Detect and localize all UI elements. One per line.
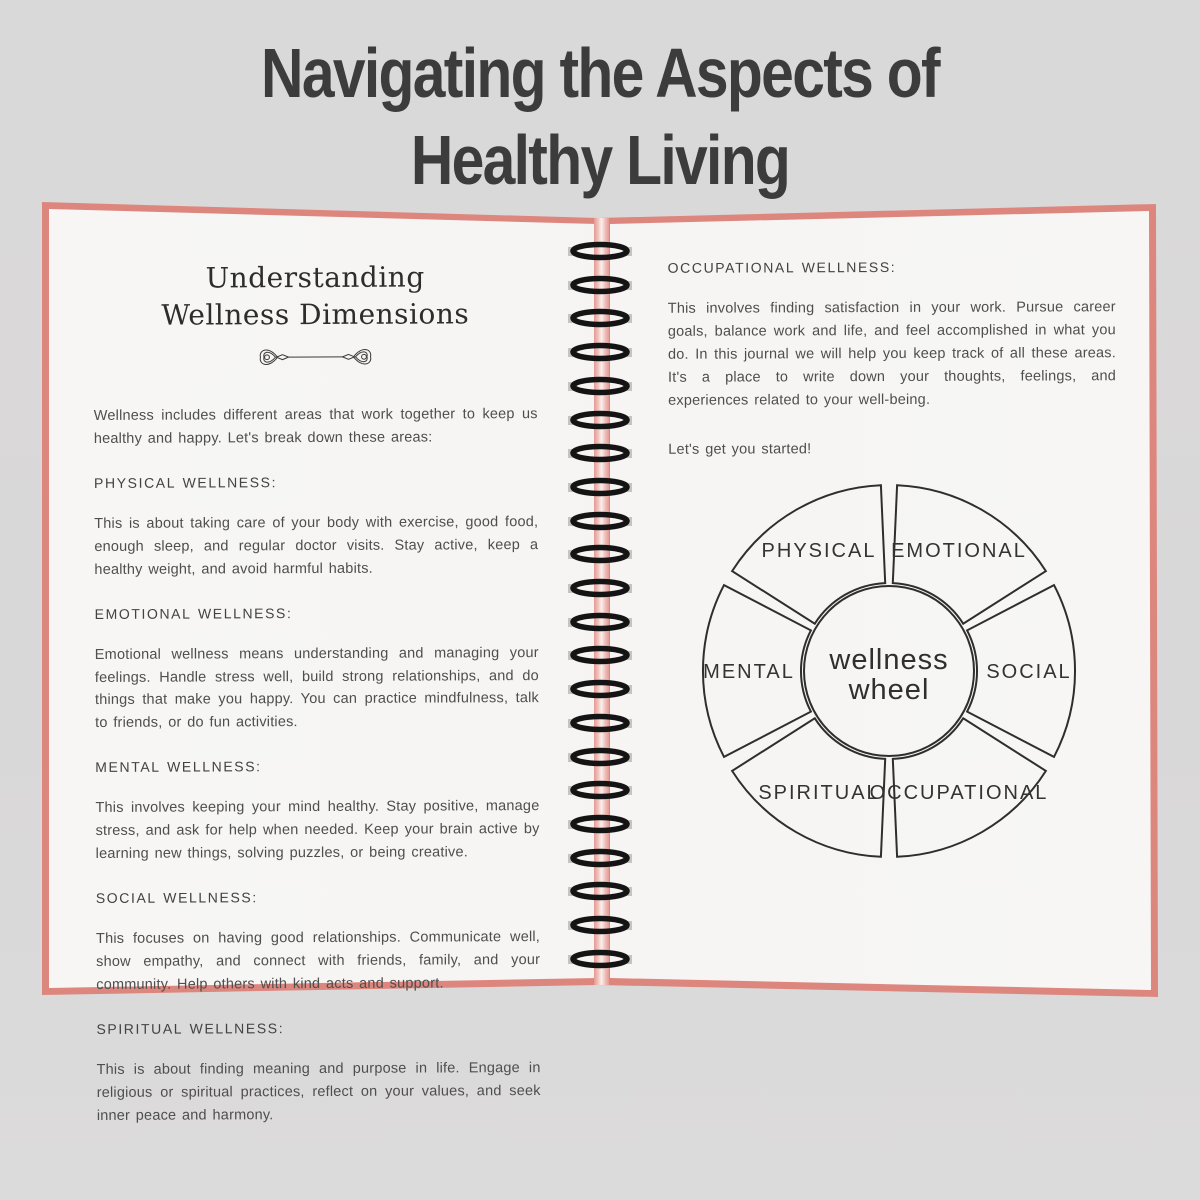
spiral-coil-icon [568, 307, 632, 329]
section-body-spiritual: This is about finding meaning and purpos… [97, 1057, 541, 1128]
spiral-coil-icon [568, 341, 632, 363]
wheel-segment-label-spiritual: SPIRITUAL [758, 782, 879, 804]
wheel-segment-label-occupational: OCCUPATIONAL [870, 782, 1049, 804]
heart-flourish-icon [256, 342, 374, 373]
left-page-heading: UnderstandingWellness Dimensions [93, 259, 537, 335]
spiral-coil-icon [568, 644, 632, 666]
spiral-coil-icon [568, 678, 632, 700]
section-body-physical: This is about taking care of your body w… [94, 511, 538, 582]
section-heading-mental: MENTAL WELLNESS: [95, 754, 539, 778]
page-title-line2: Healthy Living [411, 121, 789, 199]
spiral-coil-icon [568, 611, 632, 633]
section-body-social: This focuses on having good relationship… [96, 926, 540, 997]
spiral-coil-icon [568, 847, 632, 869]
journal-spread: UnderstandingWellness Dimensions Wellnes… [40, 196, 1160, 1002]
spiral-coil-icon [568, 240, 632, 262]
spiral-coil-icon [568, 577, 632, 599]
spiral-coil-icon [568, 779, 632, 801]
page-title: Navigating the Aspects ofHealthy Living [96, 30, 1104, 204]
right-page-content: OCCUPATIONAL WELLNESS: This involves fin… [668, 255, 1117, 482]
spiral-coil-icon [568, 914, 632, 936]
section-body-emotional: Emotional wellness means understanding a… [95, 642, 539, 736]
left-page-content: UnderstandingWellness Dimensions Wellnes… [93, 259, 541, 1149]
section-heading-emotional: EMOTIONAL WELLNESS: [95, 601, 539, 625]
spiral-coil-icon [568, 510, 632, 532]
wheel-segment-label-emotional: EMOTIONAL [891, 540, 1027, 562]
section-body-mental: This involves keeping your mind healthy.… [95, 795, 539, 866]
spiral-coil-icon [568, 274, 632, 296]
get-started-text: Let's get you started! [668, 437, 1116, 461]
wellness-wheel-diagram: PHYSICALEMOTIONALMENTALSOCIALSPIRITUALOC… [696, 478, 1082, 864]
spiral-coil-icon [568, 442, 632, 464]
left-heading-line2: Wellness Dimensions [161, 297, 469, 331]
spiral-coil-icon [568, 409, 632, 431]
wheel-segment-label-mental: MENTAL [703, 661, 795, 683]
spiral-coil-icon [568, 746, 632, 768]
left-heading-line1: Understanding [205, 261, 424, 295]
page-title-line1: Navigating the Aspects of [261, 34, 939, 112]
section-heading-occupational: OCCUPATIONAL WELLNESS: [668, 255, 1116, 279]
section-heading-spiritual: SPIRITUAL WELLNESS: [96, 1016, 540, 1040]
spiral-coil-icon [568, 880, 632, 902]
spiral-coil-icon [568, 813, 632, 835]
wheel-segment-label-physical: PHYSICAL [762, 540, 877, 562]
spiral-coil-icon [568, 476, 632, 498]
section-heading-physical: PHYSICAL WELLNESS: [94, 470, 538, 494]
spiral-coil-icon [568, 712, 632, 734]
spine-gap [594, 218, 609, 985]
spiral-coil-icon [568, 375, 632, 397]
wheel-hub-center_line2: wheel [848, 674, 930, 706]
section-body-occupational: This involves finding satisfaction in yo… [668, 296, 1116, 412]
heart-divider-ornament [93, 341, 537, 378]
wheel-segment-label-social: SOCIAL [986, 661, 1071, 683]
spiral-coil-icon [568, 948, 632, 970]
spiral-coil-icon [568, 543, 632, 565]
section-heading-social: SOCIAL WELLNESS: [96, 885, 540, 909]
wheel-hub-center_line1: wellness [828, 644, 948, 676]
left-intro-paragraph: Wellness includes different areas that w… [94, 403, 538, 451]
